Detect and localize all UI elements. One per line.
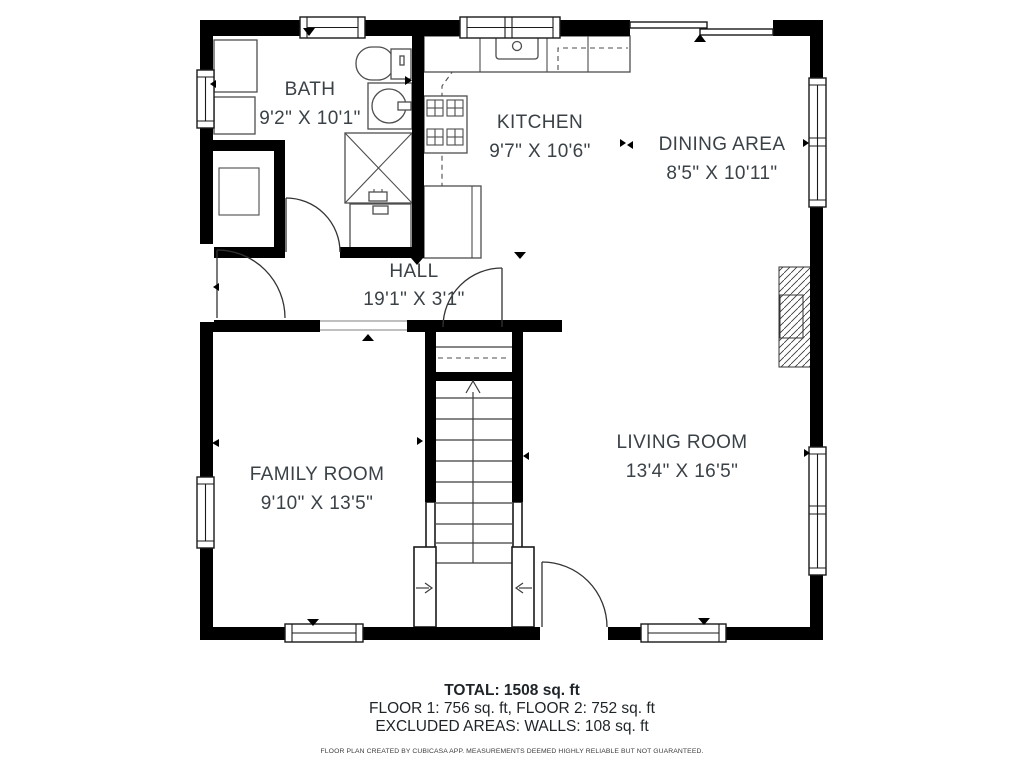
room-dims-bath: 9'2" X 10'1": [259, 108, 361, 129]
kitchen-window-top: [460, 17, 560, 38]
stair-landing-wall: [436, 372, 512, 381]
disclaimer: FLOOR PLAN CREATED BY CUBICASA APP. MEAS…: [0, 743, 1024, 761]
toilet: [356, 47, 411, 80]
total-area: TOTAL: 1508 sq. ft: [0, 682, 1024, 700]
front-door: [540, 562, 608, 642]
room-dims-hall: 19'1" X 3'1": [363, 289, 465, 310]
washer: [214, 40, 257, 92]
bath-sink: [368, 83, 412, 129]
living-window-bottom: [641, 624, 726, 642]
closet-wall-bottom: [213, 247, 285, 258]
bath-door: [286, 198, 340, 252]
bath-cabinet: [350, 204, 411, 250]
stair-treads: [436, 398, 512, 563]
closet-shelf: [219, 168, 259, 215]
room-label-family: FAMILY ROOM: [250, 464, 385, 485]
stair-post-left: [414, 547, 436, 627]
hall-wall-upper: [340, 247, 412, 258]
fridge: [424, 186, 481, 258]
hall-wall-lower-left: [213, 320, 320, 332]
floor-plan: BATH 9'2" X 10'1" KITCHEN 9'7" X 10'6" D…: [0, 0, 1024, 768]
living-window-right: [809, 447, 826, 575]
hall-wall-lower-right: [407, 320, 562, 332]
dryer: [214, 97, 255, 134]
family-room-opening: [320, 319, 407, 333]
excluded-areas: EXCLUDED AREAS: WALLS: 108 sq. ft: [0, 718, 1024, 736]
room-label-bath: BATH: [285, 79, 336, 100]
room-label-kitchen: KITCHEN: [497, 112, 583, 133]
room-dims-family: 9'10" X 13'5": [261, 493, 374, 514]
shower: [345, 133, 412, 203]
room-dims-dining: 8'5" X 10'11": [666, 163, 777, 184]
fireplace: [779, 267, 811, 367]
stair-wall-left: [425, 332, 436, 502]
room-label-living: LIVING ROOM: [616, 432, 747, 453]
stair-wall-right: [512, 332, 523, 502]
room-label-hall: HALL: [389, 261, 438, 282]
room-label-dining: DINING AREA: [659, 134, 786, 155]
room-dims-living: 13'4" X 16'5": [626, 461, 739, 482]
floor-areas: FLOOR 1: 756 sq. ft, FLOOR 2: 752 sq. ft: [0, 700, 1024, 718]
family-window-left: [197, 477, 214, 548]
dining-sliding-door: [630, 22, 773, 35]
stair-post-right: [512, 547, 534, 627]
bath-kitchen-wall: [412, 36, 424, 258]
closet-wall-right: [274, 140, 285, 258]
family-window-bottom: [285, 624, 363, 642]
stove: [424, 96, 467, 153]
summary-block: TOTAL: 1508 sq. ft FLOOR 1: 756 sq. ft, …: [0, 682, 1024, 761]
bath-window-left: [197, 70, 214, 128]
room-dims-kitchen: 9'7" X 10'6": [489, 141, 591, 162]
stair-up-arrow: [466, 381, 480, 393]
dining-window-right: [809, 78, 826, 207]
